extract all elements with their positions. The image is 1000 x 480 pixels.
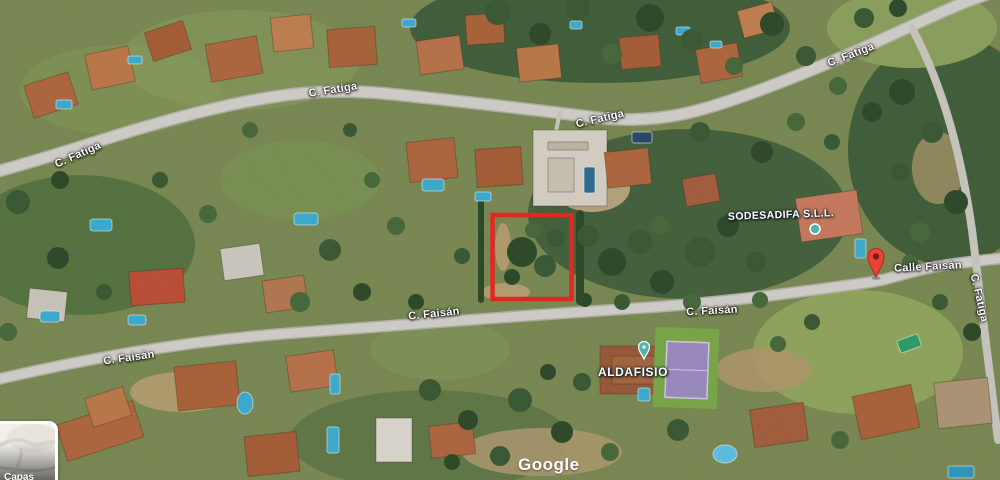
poi-label-clinic[interactable]: ALDAFISIO bbox=[598, 365, 668, 379]
satellite-imagery[interactable] bbox=[0, 0, 1000, 480]
layers-control[interactable]: Capas bbox=[0, 421, 58, 480]
layers-overlay: Capas bbox=[0, 424, 55, 480]
layers-label: Capas bbox=[4, 472, 34, 480]
map-viewport: C. Fatiga C. Fatiga C. Fatiga C. Fatiga … bbox=[0, 0, 1000, 480]
photo-grain bbox=[0, 0, 1000, 480]
google-watermark: Google bbox=[518, 455, 580, 475]
layers-thumbnail: Capas bbox=[0, 424, 55, 480]
